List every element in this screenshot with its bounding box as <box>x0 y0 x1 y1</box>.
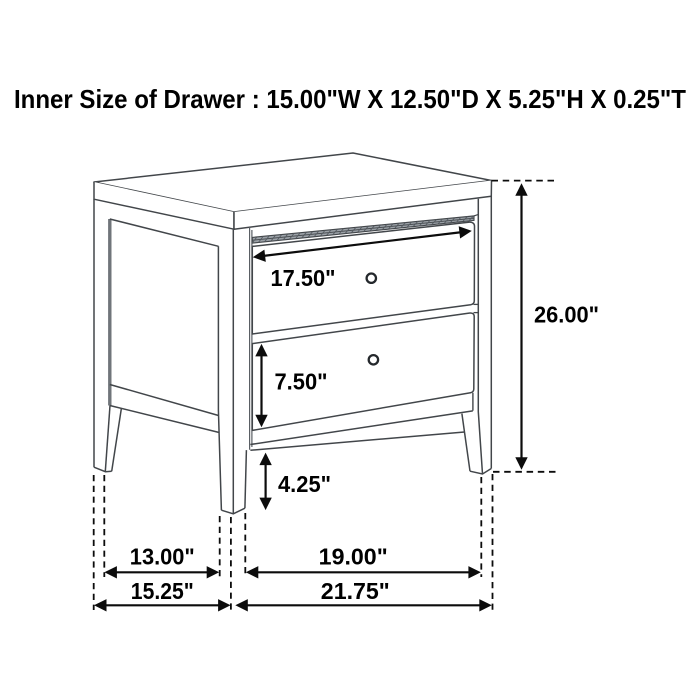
svg-text:13.00": 13.00" <box>130 543 195 569</box>
svg-text:15.25": 15.25" <box>131 578 194 604</box>
svg-text:4.25": 4.25" <box>278 471 331 497</box>
svg-text:7.50": 7.50" <box>275 369 328 395</box>
svg-text:21.75": 21.75" <box>321 578 390 604</box>
svg-text:26.00": 26.00" <box>534 302 599 328</box>
svg-text:Inner Size of Drawer : 15.00"W: Inner Size of Drawer : 15.00"W X 12.50"D… <box>14 84 686 114</box>
svg-text:19.00": 19.00" <box>319 543 388 569</box>
svg-text:17.50": 17.50" <box>271 265 336 291</box>
